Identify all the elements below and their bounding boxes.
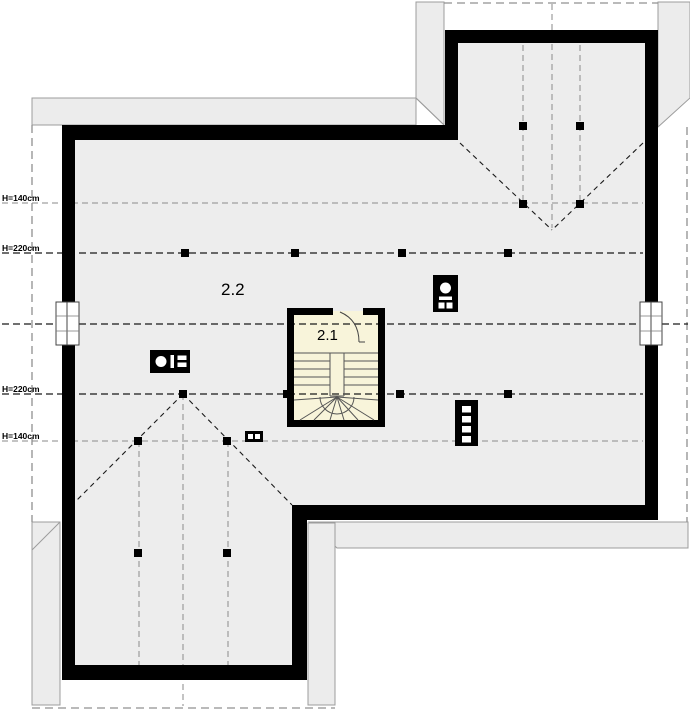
- eave-top-band: [32, 98, 416, 125]
- small-vent-icon: [245, 431, 263, 442]
- height-label-1: H=140cm: [2, 193, 40, 203]
- room-label-2-1: 2.1: [317, 327, 338, 344]
- height-label-2: H=220cm: [2, 243, 40, 253]
- eave-wing-left-strip: [32, 522, 60, 705]
- floor-plan-svg: H=140cm H=220cm H=220cm H=140cm 2.2 2.1: [0, 0, 690, 712]
- chimney-flue-icon: [433, 275, 458, 312]
- eave-dormer-left-strip: [416, 2, 444, 125]
- eave-wing-right-strip: [308, 523, 335, 705]
- window-right: [640, 302, 662, 345]
- window-left: [56, 302, 79, 345]
- floor-plan-canvas: H=140cm H=220cm H=220cm H=140cm 2.2 2.1: [0, 0, 690, 712]
- room-label-2-2: 2.2: [221, 280, 245, 299]
- eave-bottom-right-band: [309, 522, 688, 548]
- height-label-3: H=220cm: [2, 384, 40, 394]
- eave-dormer-right-strip: [658, 2, 690, 127]
- vent-stack-icon: [455, 400, 478, 446]
- height-label-4: H=140cm: [2, 431, 40, 441]
- boiler-flue-icon: [150, 350, 190, 373]
